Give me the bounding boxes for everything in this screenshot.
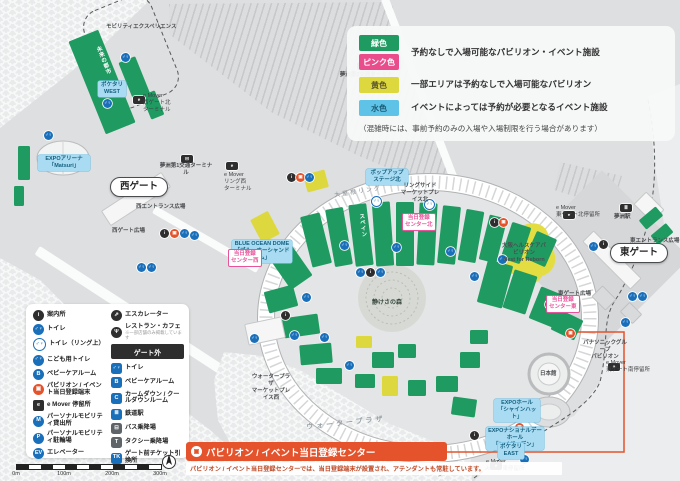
pink-chip: ピンク色 bbox=[359, 54, 399, 70]
scale-tick: 300m bbox=[153, 471, 167, 477]
label-panasonic-pavilion: パナソニックグループ パビリオン bbox=[582, 340, 628, 361]
legend-note: （混雑時には、事前予約のみの入場や入場制限を行う場合があります） bbox=[359, 123, 665, 134]
emover-stop-icon: e bbox=[33, 400, 44, 411]
registration-terminal-icon: ▣ bbox=[33, 384, 44, 395]
legend-item: Pパーソナルモビリティ駐輪場 bbox=[33, 431, 106, 445]
taxi-icon: T bbox=[111, 437, 122, 448]
label-registration-center-east: 当日登録 センター東 bbox=[546, 295, 580, 313]
mobility-parking-icon: P bbox=[33, 433, 44, 444]
legend-item-label: レストラン・カフェ※一部店舗のみ掲載しています bbox=[125, 324, 184, 341]
toilet-ring-icon: ♂♀ bbox=[33, 338, 46, 351]
banner-description: パビリオン / イベント当日登録センターでは、当日登録端末が設置され、アテンダン… bbox=[186, 462, 562, 475]
escalator-icon: ⇗ bbox=[111, 310, 122, 321]
legend-item: Ψレストラン・カフェ※一部店舗のみ掲載しています bbox=[111, 324, 184, 341]
facility-legend-panel: i案内所♂♀トイレ♂♀トイレ（リング上）♂♀こども用トイレBベビーケアルーム▣パ… bbox=[26, 304, 189, 458]
banner-title: パビリオン / イベント当日登録センター bbox=[206, 445, 375, 459]
legend-item: Mパーソナルモビリティ貸出所 bbox=[33, 414, 106, 428]
legend-row-no-reservation: 緑色 ピンク色 予約なしで入場可能なパビリオン・イベント施設 bbox=[359, 35, 665, 70]
legend-item-note: ※一部店舗のみ掲載しています bbox=[125, 331, 184, 341]
label-emover-west-north: e Mover 西ゲート北 ターミナル bbox=[143, 93, 171, 114]
legend-item: Bベビーケアルーム bbox=[111, 377, 184, 388]
expo-site-map: ♂♀♂♀♂♀e⊟⊟♂♀i▣♂♀♂♀♂♀♂♀ei▣♂♀♂♀♂♀♂♀♂♀♂♀♂♀♂♀… bbox=[0, 0, 680, 481]
babycare-icon: B bbox=[33, 369, 44, 380]
label-grand-ring: 大屋根リング bbox=[334, 185, 383, 200]
legend-desc: 一部エリアは予約なしで入場可能なパビリオン bbox=[411, 79, 591, 90]
legend-item-label: 鉄道駅 bbox=[125, 411, 144, 418]
gate-toilet-icon: ♂♀ bbox=[111, 363, 122, 374]
legend-item: i案内所 bbox=[33, 310, 106, 321]
label-west-gate-plaza: 西ゲート広場 bbox=[112, 228, 145, 235]
legend-item-label: パーソナルモビリティ貸出所 bbox=[47, 414, 106, 428]
legend-item: ee Mover 停留所 bbox=[33, 400, 106, 411]
legend-item: ⊟バス乗降場 bbox=[111, 423, 184, 434]
info-icon: i bbox=[33, 310, 44, 321]
label-west-entrance-plaza: 西エントランス広場 bbox=[136, 204, 185, 211]
bus-icon: ⊟ bbox=[111, 423, 122, 434]
legend-item: ♂♀こども用トイレ bbox=[33, 355, 106, 366]
legend-panel: 緑色 ピンク色 予約なしで入場可能なパビリオン・イベント施設 黄色 一部エリアは… bbox=[347, 26, 675, 141]
kids-toilet-icon: ♂♀ bbox=[33, 355, 44, 366]
legend-item-label: バス乗降場 bbox=[125, 425, 156, 432]
legend-item: ♂♀トイレ bbox=[33, 324, 106, 335]
banner-title-bar: ▣ パビリオン / イベント当日登録センター bbox=[186, 442, 447, 461]
legend-row-partial: 黄色 一部エリアは予約なしで入場可能なパビリオン bbox=[359, 77, 665, 93]
legend-item-label: 案内所 bbox=[47, 312, 66, 319]
label-emover-ring-west: e Mover リング西 ターミナル bbox=[224, 172, 252, 193]
legend-item-label: トイレ bbox=[125, 365, 144, 372]
legend-item-label: パーソナルモビリティ駐輪場 bbox=[47, 431, 106, 445]
label-pocketari-west: ポケタリ WEST bbox=[98, 81, 126, 97]
scale-tick: 200m bbox=[105, 471, 119, 477]
registration-terminal-icon: ▣ bbox=[191, 446, 202, 457]
label-registration-center-west: 当日登録 センター西 bbox=[228, 249, 262, 267]
legend-item: Cカームダウン / クールダウンルーム bbox=[111, 392, 184, 406]
lightblue-chip: 水色 bbox=[359, 100, 399, 116]
legend-item-label: ベビーケアルーム bbox=[125, 379, 174, 386]
label-forest-of-tranquility: 静けさの森 bbox=[372, 300, 402, 308]
label-yumeshima-terminal-1: 夢洲第1交通ターミナル bbox=[158, 163, 214, 177]
label-west-gate: 西ゲート bbox=[110, 177, 168, 197]
legend-desc: イベントによっては予約が必要となるイベント施設 bbox=[411, 102, 608, 113]
legend-item: ⇗エスカレーター bbox=[111, 310, 184, 321]
mobility-rental-icon: M bbox=[33, 416, 44, 427]
legend-item-label: パビリオン / イベント当日登録端末 bbox=[47, 383, 106, 397]
legend-item-label: トイレ（リング上） bbox=[49, 341, 105, 348]
label-emover-east-north: e Mover 東ゲート北停留所 bbox=[556, 205, 600, 219]
label-east-entrance-plaza: 東エントランス広場 bbox=[630, 238, 679, 245]
legend-row-event: 水色 イベントによっては予約が必要となるイベント施設 bbox=[359, 100, 665, 116]
legend-item: ♂♀トイレ（リング上） bbox=[33, 338, 106, 351]
legend-item-label: こども用トイレ bbox=[47, 357, 90, 364]
facility-legend-left: i案内所♂♀トイレ♂♀トイレ（リング上）♂♀こども用トイレBベビーケアルーム▣パ… bbox=[33, 310, 106, 454]
legend-item: EVエレベーター bbox=[33, 448, 106, 459]
label-registration-center-north: 当日登録 センター北 bbox=[402, 213, 436, 231]
label-emover-east-south: e Mover 東ゲート南停留所 bbox=[606, 360, 650, 374]
calmdown-icon: C bbox=[111, 393, 122, 404]
gate-babycare-icon: B bbox=[111, 377, 122, 388]
label-osaka-healthcare-pavilion: 大阪ヘルスケアパビリオン Nest for Reborn bbox=[500, 243, 548, 264]
legend-item: ≣鉄道駅 bbox=[111, 409, 184, 420]
legend-item-label: トイレ bbox=[47, 326, 66, 333]
label-expo-arena: EXPOアリーナ 「Matsuri」 bbox=[38, 155, 90, 171]
gate-outside-header: ゲート外 bbox=[111, 344, 184, 359]
yellow-chip: 黄色 bbox=[359, 77, 399, 93]
legend-desc: 予約なしで入場可能なパビリオン・イベント施設 bbox=[411, 47, 600, 58]
green-chip: 緑色 bbox=[359, 35, 399, 51]
label-future-city: 未来の都市 bbox=[94, 45, 112, 75]
scale-tick: 100m bbox=[57, 471, 71, 477]
legend-item-label: エレベーター bbox=[47, 450, 84, 457]
legend-item-label: e Mover 停留所 bbox=[47, 402, 91, 409]
legend-item: Tタクシー乗降場 bbox=[111, 437, 184, 448]
label-waterplaza-marketplace-west: ウォータープラザ マーケットプレイス西 bbox=[250, 374, 292, 402]
legend-item-label: タクシー乗降場 bbox=[125, 439, 168, 446]
ticket-icon: TK bbox=[111, 453, 122, 464]
station-icon: ≣ bbox=[111, 409, 122, 420]
label-ringside-marketplace-north: リングサイド マーケットプレイス北 bbox=[398, 183, 442, 204]
label-japan-pavilion: 日本館 bbox=[540, 371, 557, 378]
label-spain: スペイン bbox=[357, 213, 367, 238]
elevator-icon: EV bbox=[33, 448, 44, 459]
legend-item-label: ベビーケアルーム bbox=[47, 371, 96, 378]
legend-item-label: カームダウン / クールダウンルーム bbox=[125, 392, 184, 406]
restaurant-icon: Ψ bbox=[111, 327, 122, 338]
legend-item: Bベビーケアルーム bbox=[33, 369, 106, 380]
label-water-plaza: ウォータープラザ bbox=[306, 416, 386, 433]
scale-bar bbox=[16, 464, 162, 470]
legend-item-label: エスカレーター bbox=[125, 312, 168, 319]
legend-item: ▣パビリオン / イベント当日登録端末 bbox=[33, 383, 106, 397]
label-mobility-experience: モビリティエクスペリエンス bbox=[106, 24, 177, 31]
toilet-icon: ♂♀ bbox=[33, 324, 44, 335]
compass-icon bbox=[160, 452, 178, 470]
registration-center-banner: ▣ パビリオン / イベント当日登録センター パビリオン / イベント当日登録セ… bbox=[186, 442, 562, 475]
label-east-gate: 東ゲート bbox=[610, 243, 668, 263]
label-yumeshima-station: 夢洲駅 bbox=[614, 214, 631, 221]
label-expo-hall: EXPOホール 「シャインハット」 bbox=[494, 399, 540, 422]
legend-item: ♂♀トイレ bbox=[111, 363, 184, 374]
facility-legend-right: ⇗エスカレーターΨレストラン・カフェ※一部店舗のみ掲載しています ゲート外 ♂♀… bbox=[111, 310, 184, 454]
scale-tick: 0m bbox=[12, 471, 20, 477]
